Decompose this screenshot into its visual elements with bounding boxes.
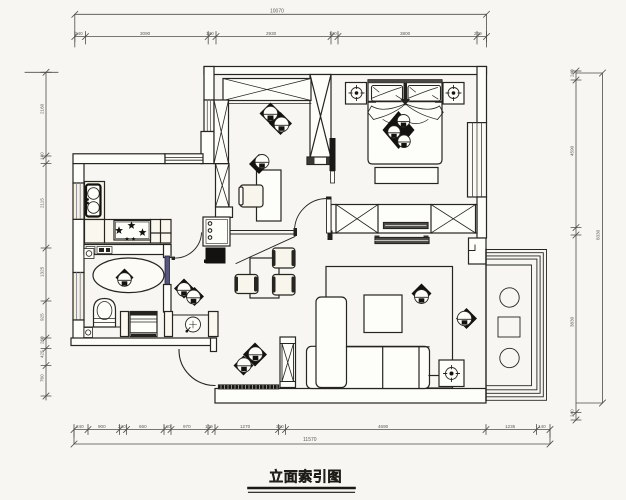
svg-text:8330: 8330 [596,229,601,240]
svg-text:11570: 11570 [303,437,317,443]
svg-text:760: 760 [40,374,45,382]
svg-text:925: 925 [40,313,45,321]
svg-text:350: 350 [276,424,284,429]
svg-text:140: 140 [205,424,213,429]
svg-text:10070: 10070 [270,9,284,15]
svg-text:3800: 3800 [400,31,411,36]
svg-text:140: 140 [163,424,171,429]
svg-text:2160: 2160 [40,103,45,114]
svg-text:240: 240 [474,31,482,36]
svg-text:3830: 3830 [570,316,575,327]
svg-text:240: 240 [118,424,126,429]
svg-text:425: 425 [40,350,45,358]
svg-text:140: 140 [40,152,45,160]
svg-text:3090: 3090 [140,31,151,36]
svg-text:260: 260 [40,336,45,344]
svg-text:240: 240 [570,69,575,77]
svg-text:970: 970 [183,424,191,429]
svg-text:4590: 4590 [570,145,575,156]
svg-text:1235: 1235 [505,424,516,429]
svg-text:立面索引图: 立面索引图 [269,469,342,486]
svg-text:2115: 2115 [40,198,45,208]
svg-text:240: 240 [75,31,83,36]
svg-text:2930: 2930 [266,31,277,36]
svg-text:140: 140 [538,424,546,429]
svg-text:240: 240 [570,409,575,417]
svg-text:4690: 4690 [378,424,389,429]
svg-text:140: 140 [206,31,214,36]
svg-text:660: 660 [139,424,147,429]
svg-text:240: 240 [76,424,84,429]
svg-text:900: 900 [98,424,106,429]
svg-text:140: 140 [329,31,337,36]
svg-text:1325: 1325 [40,266,45,277]
svg-text:1270: 1270 [240,424,251,429]
